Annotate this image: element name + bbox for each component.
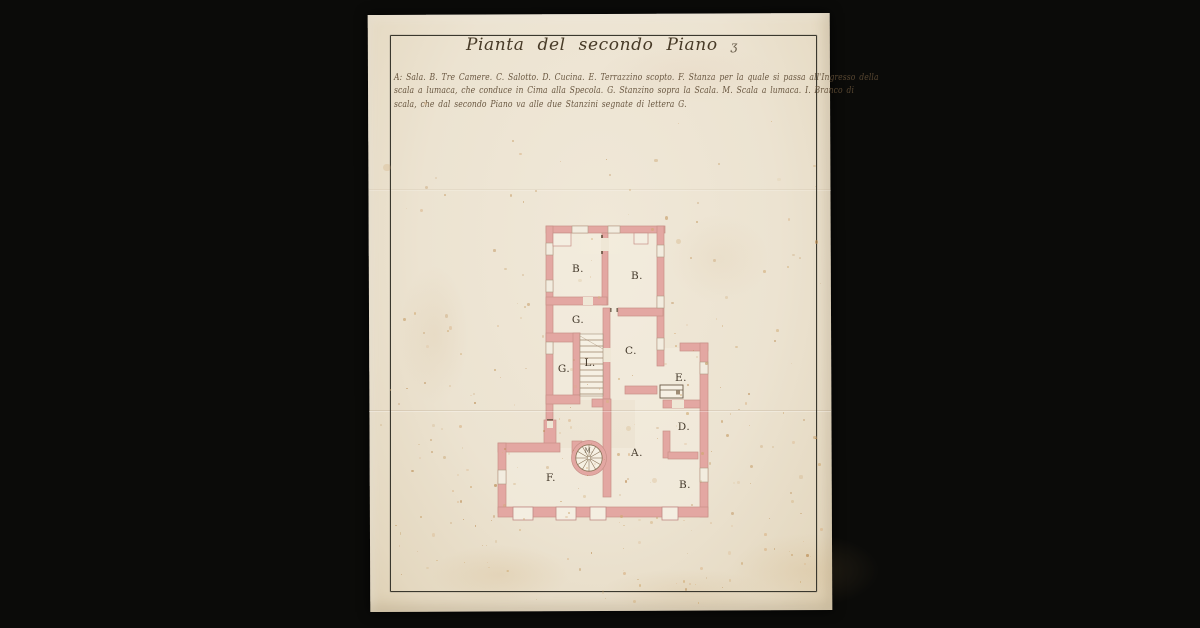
legend-line-3: scala, che dal secondo Piano va alle due… [394,99,879,112]
legend: A: Sala. B. Tre Camere. C. Salotto. D. C… [394,72,964,112]
border-frame [390,35,817,592]
legend-line-2: scala a lumaca, che conduce in Cima alla… [394,85,879,98]
plan-title-text: Pianta del secondo Piano [466,35,718,55]
title-flourish: ʒ [731,39,738,53]
plan-title: Pianta del secondo Piano ʒ [452,35,752,55]
photo-background: B.B.G.G.L.C.E.D.A.B.F.M. Pianta del seco… [0,0,1200,628]
legend-line-1: A: Sala. B. Tre Camere. C. Salotto. D. C… [394,72,879,85]
